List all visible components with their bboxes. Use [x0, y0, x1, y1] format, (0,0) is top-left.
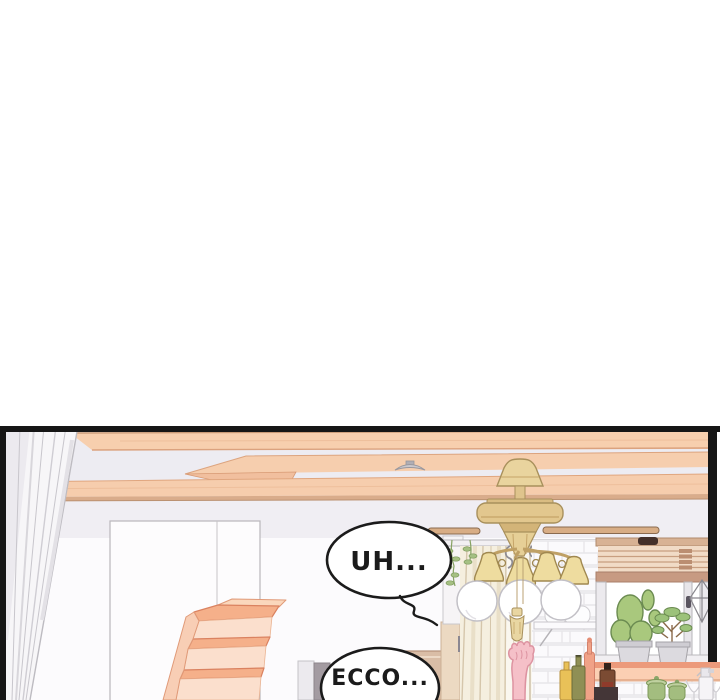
comic-panel-image: UH... ECCO...	[0, 0, 720, 700]
bubble-ecco-text: ECCO...	[331, 666, 429, 691]
bubble-uh-text: UH...	[350, 547, 428, 577]
comic-page: UH... ECCO...	[0, 0, 720, 700]
window-blinds	[596, 537, 712, 582]
blank-margin	[0, 0, 720, 426]
spray-bottle	[697, 668, 714, 700]
fan-blades	[428, 527, 659, 534]
glass-globes	[457, 580, 581, 624]
